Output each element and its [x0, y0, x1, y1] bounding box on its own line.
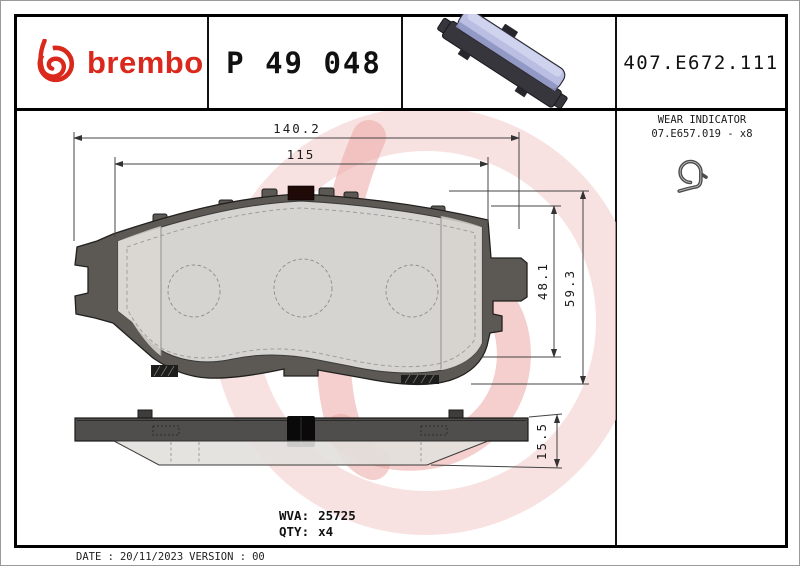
- logo-cell: brembo: [17, 17, 207, 108]
- version-value: 00: [252, 551, 265, 563]
- catalog-number: 407.E672.111: [623, 52, 778, 74]
- wear-indicator-title: WEAR INDICATOR: [616, 113, 788, 127]
- wear-indicator-code: 07.E657.019 - x8: [616, 127, 788, 141]
- dim-pad-width: 115: [287, 147, 316, 162]
- dim-thickness: 15.5: [534, 422, 549, 460]
- wva-value: 25725: [318, 508, 356, 523]
- qty-row: QTY:x4: [279, 524, 365, 540]
- brand-wordmark: brembo: [87, 45, 204, 81]
- qty-label: QTY:: [279, 524, 309, 539]
- date-value: 20/11/2023: [120, 551, 183, 563]
- date-label: DATE :: [76, 551, 114, 563]
- hatch-tab-left: [151, 365, 178, 377]
- wva-label: WVA:: [279, 508, 309, 523]
- datasheet-page: brembo P 49 048 407.E672.111 WEAR INDICA…: [0, 0, 800, 566]
- brembo-emblem-icon: [31, 39, 79, 87]
- front-view-drawing: [75, 186, 527, 384]
- wear-indicator-box: WEAR INDICATOR 07.E657.019 - x8: [616, 113, 788, 141]
- dim-pad-height: 48.1: [535, 262, 550, 300]
- dim-overall-width: 140.2: [273, 121, 321, 136]
- wear-indicator-clip-icon: [674, 144, 726, 200]
- date-version-line: DATE :20/11/2023VERSION :00: [76, 551, 271, 563]
- part-number-cell: P 49 048: [207, 17, 401, 108]
- version-label: VERSION :: [189, 551, 246, 563]
- catalog-number-cell: 407.E672.111: [616, 17, 786, 108]
- pad-image-cell: [401, 14, 615, 108]
- part-number: P 49 048: [226, 46, 382, 80]
- dim-overall-height: 59.3: [562, 269, 577, 307]
- qty-value: x4: [318, 524, 333, 539]
- brake-pad-3d-image: [401, 14, 615, 108]
- hatch-tab-right: [401, 375, 439, 384]
- wear-slot-mark: [288, 186, 314, 200]
- reference-block: WVA:25725 QTY:x4: [279, 508, 365, 540]
- technical-drawing: 140.2 115 48.1 59.3 15.5: [14, 111, 616, 548]
- wva-row: WVA:25725: [279, 508, 365, 524]
